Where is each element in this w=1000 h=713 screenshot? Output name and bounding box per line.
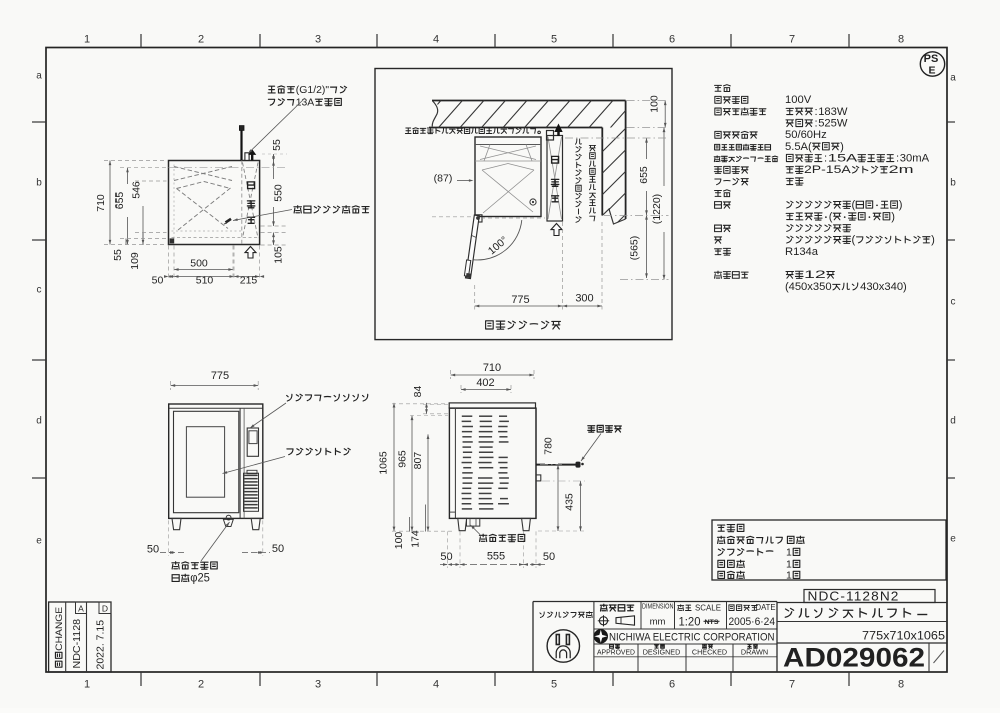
svg-text:): ) [840, 141, 844, 153]
svg-text:d: d [36, 416, 42, 427]
svg-text:4: 4 [433, 679, 439, 691]
svg-text:DESIGNED: DESIGNED [643, 648, 681, 657]
svg-text:e: e [36, 536, 42, 547]
svg-text:1: 1 [84, 679, 90, 691]
svg-text:R134a: R134a [785, 246, 819, 258]
svg-text::: : [896, 153, 899, 165]
svg-text:φ25: φ25 [190, 573, 210, 585]
svg-text:105: 105 [273, 246, 285, 264]
svg-text:50: 50 [272, 543, 284, 555]
svg-text:2P-15A: 2P-15A [804, 164, 851, 176]
svg-text:435: 435 [564, 493, 576, 511]
svg-text::: : [824, 153, 827, 165]
svg-text:215: 215 [240, 275, 258, 287]
svg-text:DIMENSION: DIMENSION [642, 604, 674, 611]
svg-text:(565): (565) [629, 236, 641, 261]
svg-text:780: 780 [543, 437, 555, 455]
svg-text:5: 5 [551, 34, 557, 46]
svg-text:50: 50 [440, 551, 452, 563]
svg-text:): ) [899, 199, 903, 211]
svg-text:(: ( [852, 234, 856, 246]
svg-text:50/60Hz: 50/60Hz [785, 129, 827, 141]
svg-text:12: 12 [804, 269, 826, 281]
svg-text:": " [325, 85, 329, 96]
svg-text:1:20: 1:20 [679, 617, 701, 629]
svg-text:NDC-1128: NDC-1128 [71, 619, 83, 669]
svg-text:2: 2 [198, 34, 204, 46]
svg-text:c: c [37, 285, 42, 296]
svg-text:G1/2: G1/2 [299, 85, 322, 96]
svg-text:NTS: NTS [705, 619, 719, 626]
svg-text:525W: 525W [818, 118, 848, 130]
svg-text:(: ( [808, 141, 812, 153]
svg-text:807: 807 [412, 452, 424, 470]
svg-text:100: 100 [393, 532, 405, 550]
svg-text:(87): (87) [434, 173, 453, 185]
svg-text:500: 500 [190, 258, 208, 270]
svg-text:350: 350 [813, 281, 832, 293]
svg-text:1065: 1065 [378, 451, 390, 475]
svg-text:4: 4 [433, 34, 439, 46]
svg-text:1: 1 [786, 570, 792, 582]
svg-text:d: d [950, 416, 956, 427]
svg-text:AD029062: AD029062 [783, 643, 925, 673]
svg-text:340: 340 [884, 281, 903, 293]
svg-text:NDC-1128N2: NDC-1128N2 [808, 589, 900, 603]
svg-text:510: 510 [196, 275, 214, 287]
svg-text:50: 50 [543, 551, 555, 563]
svg-text:3: 3 [315, 679, 321, 691]
svg-text:402: 402 [476, 377, 494, 389]
svg-text:a: a [36, 71, 42, 82]
svg-text:E: E [928, 65, 935, 77]
svg-text:(: ( [829, 211, 833, 223]
svg-text:13A: 13A [296, 98, 315, 109]
svg-text:430: 430 [860, 281, 879, 293]
svg-text::: : [815, 106, 818, 118]
svg-text:DRAWN: DRAWN [741, 648, 768, 657]
svg-text:mm: mm [650, 616, 666, 627]
svg-text:3: 3 [315, 34, 321, 46]
svg-text:710: 710 [95, 194, 107, 212]
svg-text:b: b [36, 178, 42, 189]
svg-text:546: 546 [131, 181, 143, 199]
svg-text:A: A [78, 603, 84, 613]
svg-text:7: 7 [789, 679, 795, 691]
svg-text:174: 174 [410, 530, 422, 548]
svg-text:655: 655 [638, 166, 650, 184]
svg-text:D: D [102, 603, 108, 613]
svg-text:50: 50 [152, 275, 164, 287]
svg-text:1: 1 [786, 547, 792, 559]
svg-text:15A: 15A [828, 153, 858, 165]
svg-text:100V: 100V [785, 94, 812, 106]
svg-text:300: 300 [575, 293, 593, 305]
svg-text:5.5A: 5.5A [785, 141, 809, 153]
svg-text:CHANGE: CHANGE [54, 607, 65, 651]
svg-text:775x710x1065: 775x710x1065 [862, 629, 945, 643]
svg-text:2022. 7.15: 2022. 7.15 [95, 620, 107, 670]
svg-text:550: 550 [273, 184, 285, 202]
svg-text:PS: PS [924, 53, 939, 65]
svg-text:b: b [950, 178, 956, 189]
svg-text:): ) [903, 281, 907, 293]
svg-text:450: 450 [789, 281, 808, 293]
svg-text:30mA: 30mA [900, 153, 930, 165]
svg-text:DATE: DATE [756, 603, 776, 612]
svg-text:NICHIWA ELECTRIC CORPORATION: NICHIWA ELECTRIC CORPORATION [609, 632, 775, 644]
svg-text:2005·6·24: 2005·6·24 [729, 616, 776, 628]
svg-text:2m: 2m [889, 164, 914, 176]
svg-text:e: e [950, 534, 956, 545]
svg-text:a: a [950, 73, 956, 84]
svg-text:8: 8 [898, 679, 904, 691]
svg-text:965: 965 [397, 450, 409, 468]
svg-text:2: 2 [198, 679, 204, 691]
svg-text:775: 775 [211, 370, 229, 382]
svg-text:8: 8 [898, 34, 904, 46]
svg-text:): ) [931, 234, 935, 246]
svg-text:710: 710 [483, 362, 501, 374]
svg-text:(1220): (1220) [651, 194, 663, 224]
svg-text:84: 84 [412, 386, 424, 398]
svg-text:c: c [951, 297, 956, 308]
svg-text:(: ( [852, 199, 856, 211]
svg-text::: : [815, 118, 818, 130]
svg-text:100: 100 [649, 95, 661, 113]
svg-text:CHECKED: CHECKED [692, 648, 727, 657]
svg-text:55: 55 [271, 139, 283, 151]
svg-text:1: 1 [84, 34, 90, 46]
svg-text:SCALE: SCALE [695, 604, 721, 613]
svg-text:655: 655 [114, 192, 126, 210]
svg-text:): ) [891, 211, 895, 223]
svg-text:50: 50 [147, 544, 159, 556]
svg-text:183W: 183W [818, 106, 848, 118]
svg-text:5: 5 [551, 679, 557, 691]
svg-text:6: 6 [669, 679, 675, 691]
svg-text:775: 775 [511, 294, 529, 306]
svg-text:6: 6 [669, 34, 675, 46]
svg-text:55: 55 [112, 249, 124, 261]
svg-text:109: 109 [129, 252, 141, 270]
svg-text:7: 7 [789, 34, 795, 46]
svg-text:555: 555 [487, 551, 505, 563]
